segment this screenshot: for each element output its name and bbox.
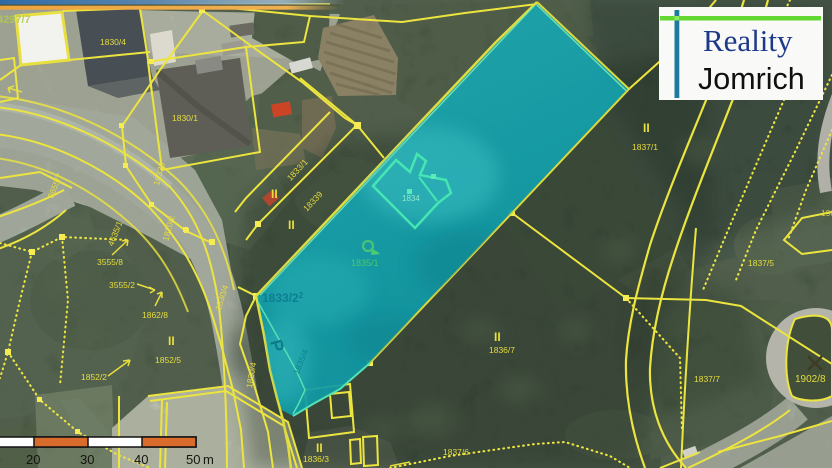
svg-text:m: m bbox=[203, 452, 214, 467]
svg-text:4297/7: 4297/7 bbox=[0, 14, 31, 26]
svg-text:1852/5: 1852/5 bbox=[155, 355, 181, 365]
svg-text:1902/8: 1902/8 bbox=[795, 374, 826, 385]
svg-text:40: 40 bbox=[134, 452, 148, 467]
svg-text:3555/8: 3555/8 bbox=[97, 257, 123, 267]
svg-text:1833/22: 1833/22 bbox=[262, 291, 304, 305]
svg-text:II: II bbox=[288, 218, 295, 232]
svg-text:II: II bbox=[316, 441, 323, 455]
svg-text:1837/6: 1837/6 bbox=[443, 447, 469, 457]
svg-text:20: 20 bbox=[26, 452, 40, 467]
svg-text:1834: 1834 bbox=[402, 194, 420, 203]
svg-text:1830/4: 1830/4 bbox=[100, 37, 126, 47]
svg-text:1852/2: 1852/2 bbox=[81, 372, 107, 382]
svg-text:1836/7: 1836/7 bbox=[489, 345, 515, 355]
svg-text:II: II bbox=[494, 330, 501, 344]
svg-text:190: 190 bbox=[821, 208, 832, 218]
svg-text:Jomrich: Jomrich bbox=[698, 62, 805, 96]
svg-text:1830/1: 1830/1 bbox=[172, 113, 198, 123]
svg-text:1837/7: 1837/7 bbox=[694, 374, 720, 384]
svg-text:Reality: Reality bbox=[703, 23, 793, 58]
svg-text:30: 30 bbox=[80, 452, 94, 467]
svg-text:II: II bbox=[643, 121, 650, 135]
svg-text:II: II bbox=[271, 187, 278, 201]
svg-text:50: 50 bbox=[186, 452, 200, 467]
svg-text:1862/8: 1862/8 bbox=[142, 310, 168, 320]
svg-text:1837/5: 1837/5 bbox=[748, 258, 774, 268]
svg-text:1836/3: 1836/3 bbox=[303, 454, 329, 464]
svg-text:1835/1: 1835/1 bbox=[351, 258, 379, 268]
svg-text:1837/1: 1837/1 bbox=[632, 142, 658, 152]
svg-text:II: II bbox=[168, 334, 175, 348]
svg-text:3555/2: 3555/2 bbox=[109, 280, 135, 290]
